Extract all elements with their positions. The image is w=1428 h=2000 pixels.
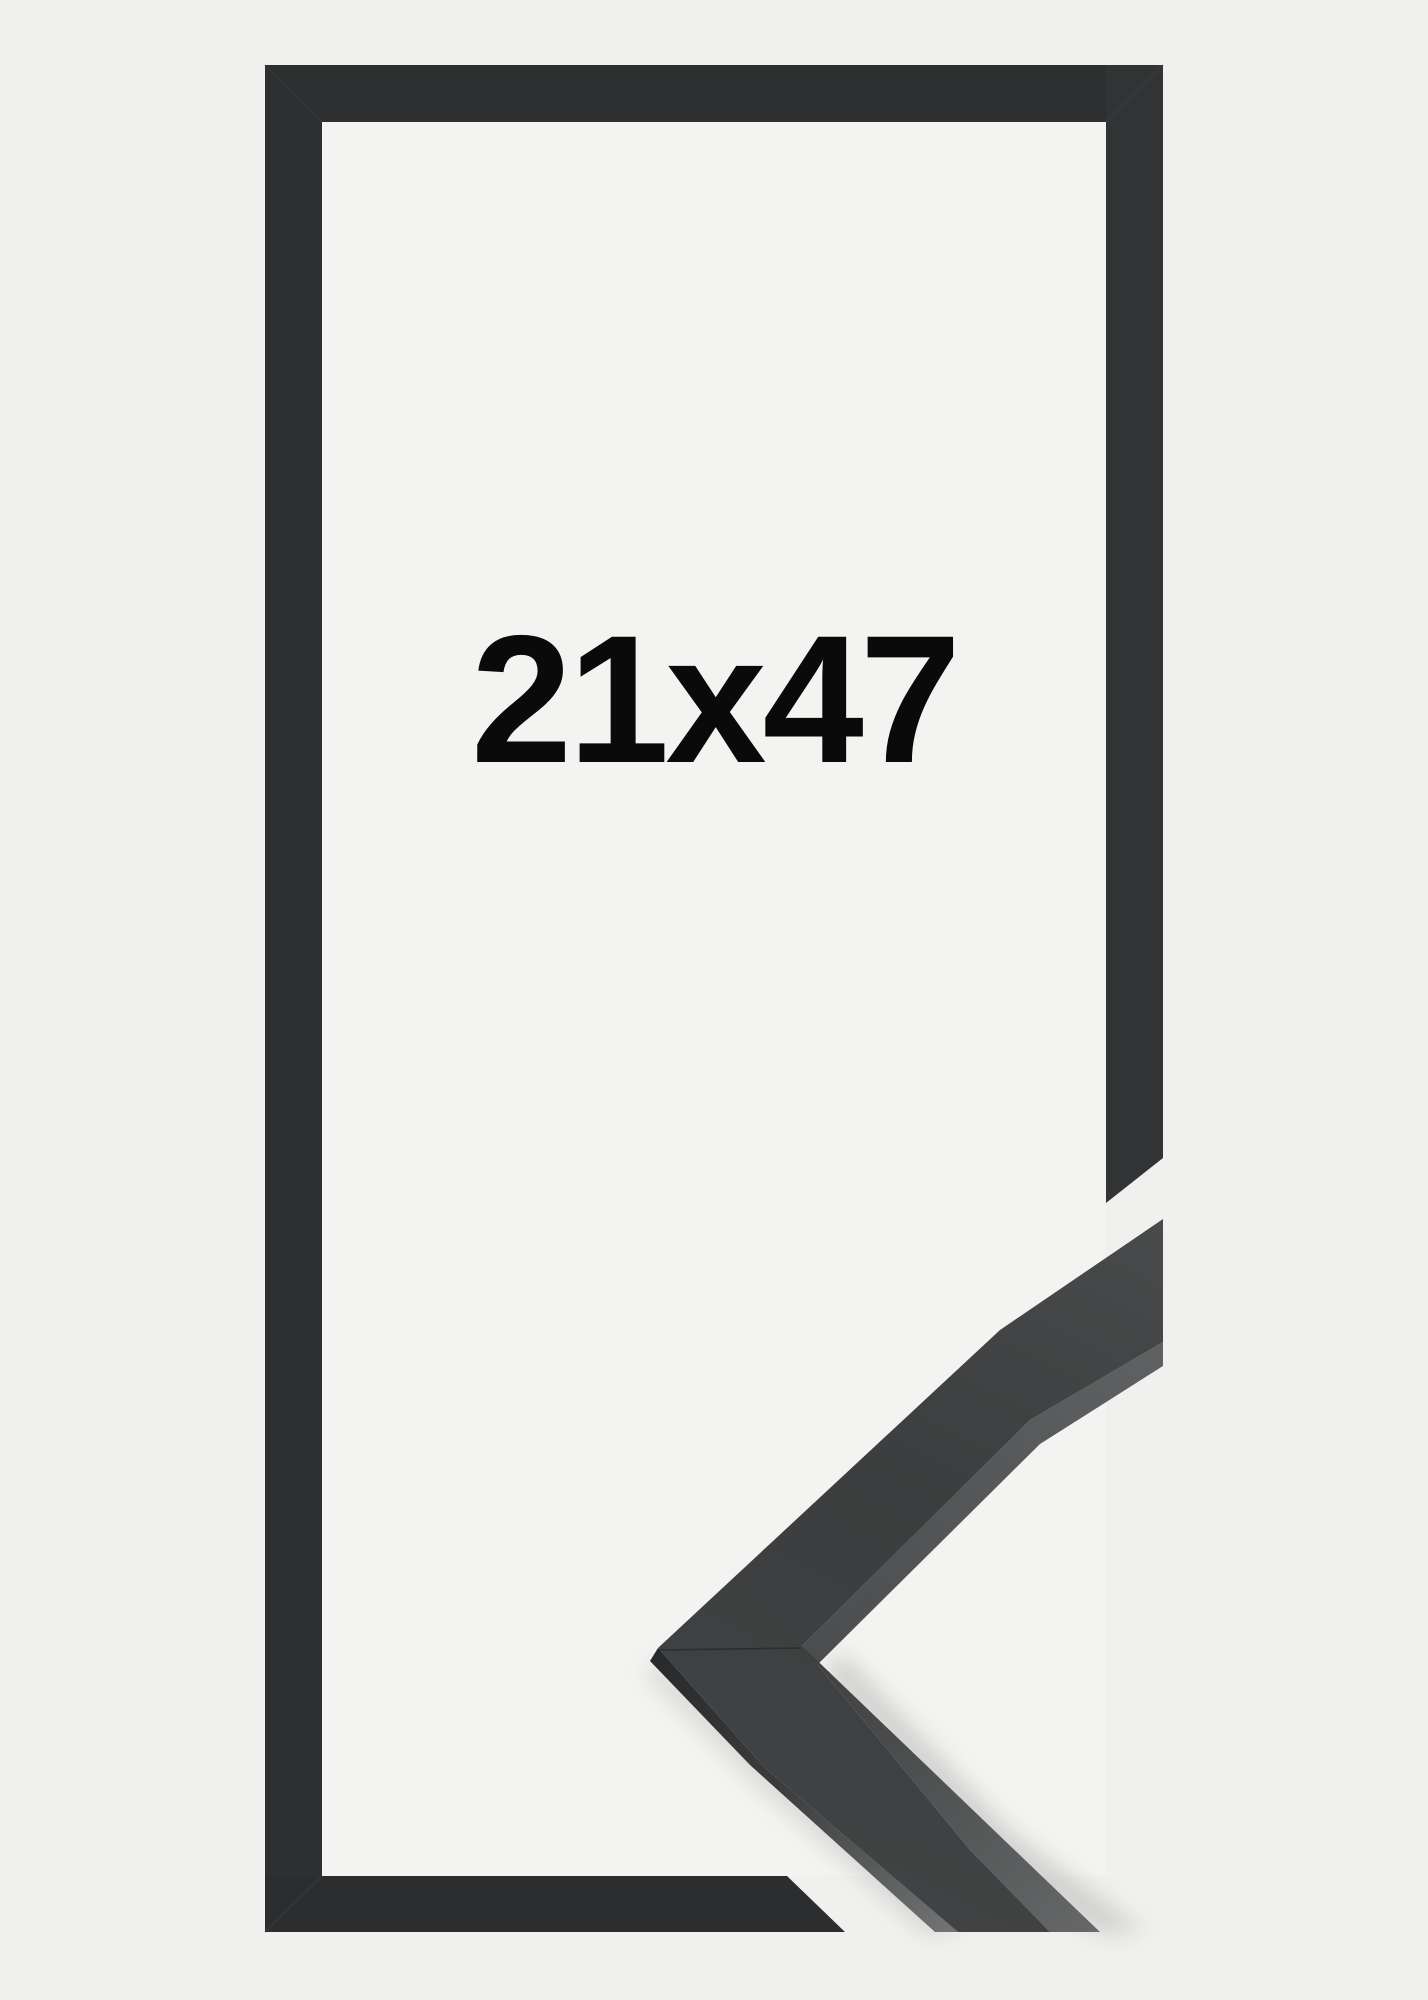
frame-bar-left	[265, 65, 322, 1932]
product-image: 21x47	[0, 0, 1428, 2000]
frame-bar-right	[1106, 65, 1163, 1203]
frame-bar-bottom	[265, 1876, 845, 1932]
product-image-canvas: 21x47	[0, 0, 1428, 2000]
size-label: 21x47	[471, 597, 957, 801]
frame-bar-top	[265, 65, 1163, 122]
